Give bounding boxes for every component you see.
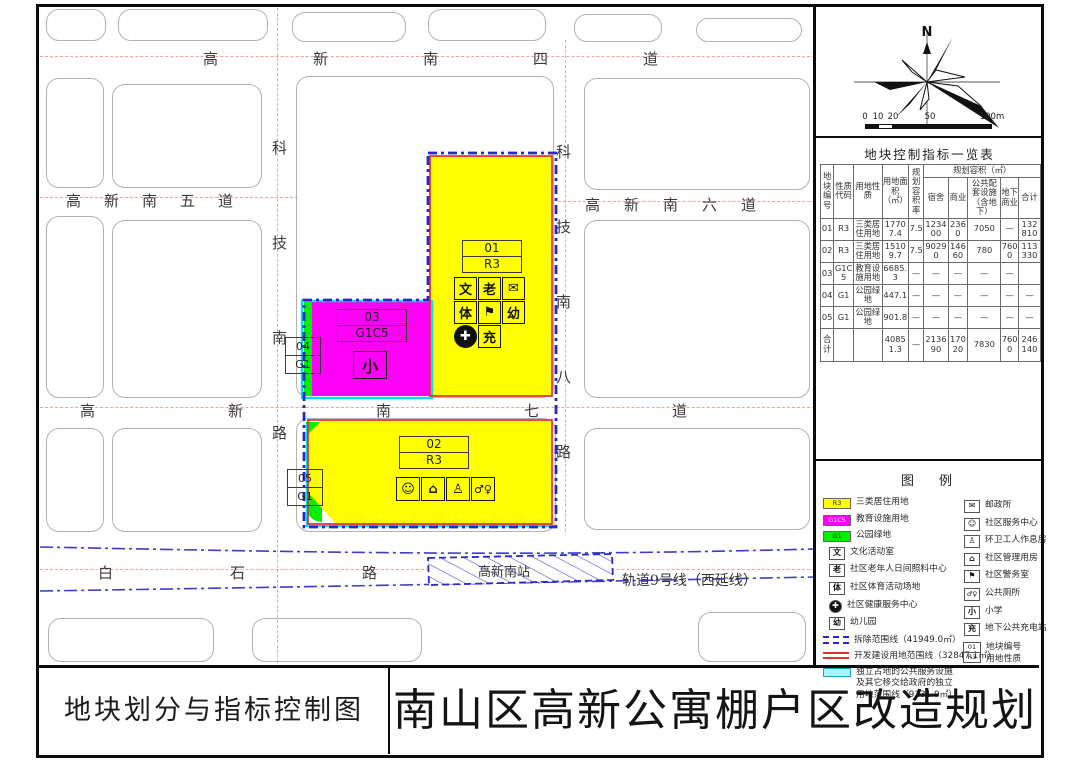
sheet-frame bbox=[36, 4, 1044, 758]
project-title: 南山区高新公寓棚户区改造规划 bbox=[390, 667, 1040, 755]
plan-sheet: 高新南四道 高新南五道 高新南六道 高新南七道 白石路 科技南路 科技南八路 高… bbox=[0, 0, 1080, 764]
panel-divider bbox=[813, 7, 816, 667]
panel-section-line bbox=[813, 459, 1041, 461]
panel-section-line bbox=[813, 136, 1041, 138]
drawing-title: 地块划分与指标控制图 bbox=[40, 667, 388, 755]
